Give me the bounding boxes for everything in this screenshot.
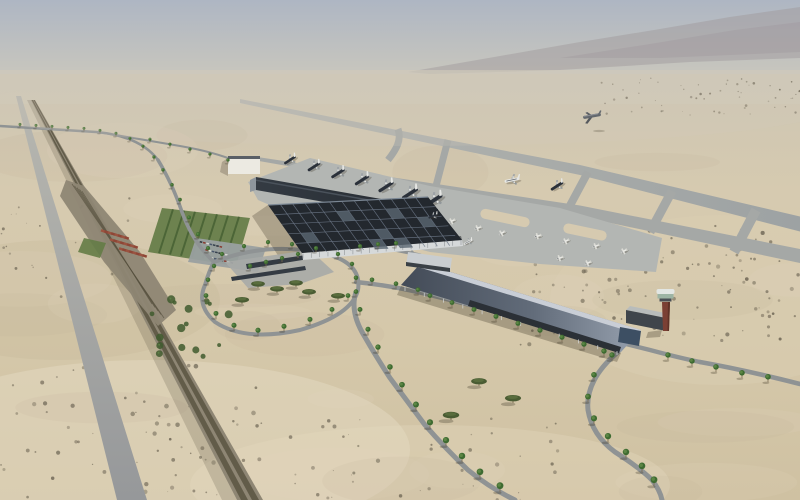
desert-shrub bbox=[779, 338, 782, 341]
desert-shrub bbox=[765, 290, 768, 293]
desert-shrub bbox=[39, 225, 41, 227]
desert-shrub bbox=[1, 233, 3, 235]
desert-shrub bbox=[677, 284, 680, 287]
desert-shrub bbox=[359, 419, 360, 420]
clump-tree bbox=[184, 322, 189, 327]
desert-shrub bbox=[645, 295, 647, 297]
palm-shadow bbox=[140, 149, 144, 150]
desert-shrub bbox=[536, 273, 538, 275]
palm-canopy-light bbox=[516, 322, 519, 325]
desert-shrub bbox=[727, 79, 729, 81]
desert-shrub bbox=[564, 287, 565, 288]
desert-shrub bbox=[46, 411, 48, 413]
desert-shrub bbox=[753, 258, 756, 261]
desert-shrub bbox=[754, 307, 757, 310]
desert-shrub bbox=[778, 260, 780, 262]
desert-shrub bbox=[767, 325, 770, 328]
service-building-roof-edge bbox=[228, 156, 260, 159]
desert-shrub bbox=[331, 497, 332, 498]
desert-shrub bbox=[696, 306, 698, 308]
acacia-canopy-light bbox=[507, 395, 518, 399]
palm-canopy-light bbox=[142, 145, 144, 147]
desert-shrub bbox=[67, 426, 70, 429]
desert-shrub bbox=[627, 285, 628, 286]
desert-shrub bbox=[158, 415, 160, 417]
desert-shrub bbox=[518, 492, 519, 493]
palm-canopy-light bbox=[450, 301, 453, 304]
desert-shrub bbox=[167, 423, 171, 427]
tree-shadow bbox=[286, 287, 298, 290]
clump-tree-light bbox=[170, 298, 172, 300]
desert-shrub bbox=[157, 450, 159, 452]
desert-shrub bbox=[32, 402, 36, 406]
desert-shrub bbox=[232, 420, 234, 422]
desert-shrub bbox=[257, 457, 261, 461]
desert-shrub bbox=[430, 444, 432, 446]
palm-shadow bbox=[246, 270, 251, 272]
palm-shadow bbox=[225, 163, 229, 164]
desert-shrub bbox=[326, 496, 329, 499]
palm-canopy-light bbox=[651, 477, 655, 481]
palm-shadow bbox=[579, 349, 586, 351]
palm-shadow bbox=[262, 266, 267, 268]
desert-shrub bbox=[18, 206, 20, 208]
desert-shrub bbox=[32, 267, 34, 269]
sand-mottle bbox=[595, 153, 720, 171]
desert-shrub bbox=[420, 490, 421, 491]
desert-shrub bbox=[716, 264, 720, 268]
palm-shadow bbox=[278, 262, 283, 264]
palm-shadow bbox=[373, 352, 380, 354]
palm-shadow bbox=[351, 296, 357, 298]
desert-shrub bbox=[40, 381, 44, 385]
desert-shrub bbox=[725, 332, 729, 336]
desert-shrub bbox=[9, 252, 11, 254]
desert-shrub bbox=[769, 85, 770, 86]
clump-tree bbox=[156, 350, 163, 357]
palm-shadow bbox=[425, 300, 431, 302]
desert-shrub bbox=[471, 434, 472, 435]
desert-shrub bbox=[316, 493, 319, 496]
desert-shrub bbox=[399, 494, 402, 497]
palm-canopy-light bbox=[256, 328, 259, 331]
desert-shrub bbox=[146, 431, 147, 432]
desert-shrub bbox=[553, 470, 557, 474]
desert-shrub bbox=[135, 412, 136, 413]
desert-shrub bbox=[60, 295, 63, 298]
desert-shrub bbox=[468, 448, 472, 452]
desert-shrub bbox=[721, 285, 722, 286]
desert-shrub bbox=[601, 299, 603, 301]
palm-shadow bbox=[17, 127, 21, 128]
desert-shrub bbox=[2, 246, 5, 249]
desert-shrub bbox=[255, 386, 258, 389]
scene-canvas: Aerial 3D architectural rendering of a d… bbox=[0, 0, 800, 500]
palm-shadow bbox=[374, 248, 379, 250]
desert-shrub bbox=[175, 423, 179, 427]
tree-shadow bbox=[248, 288, 260, 291]
desert-shrub bbox=[582, 290, 584, 292]
palm-shadow bbox=[413, 294, 419, 296]
palm-shadow bbox=[327, 314, 333, 316]
desert-shrub bbox=[130, 412, 134, 416]
palm-shadow bbox=[312, 252, 317, 254]
palm-canopy-light bbox=[162, 169, 164, 171]
control-tower-cab-top bbox=[657, 289, 675, 294]
palm-canopy-light bbox=[370, 278, 372, 280]
desert-shrub bbox=[342, 435, 345, 438]
palm-shadow bbox=[288, 248, 293, 250]
desert-shrub bbox=[144, 482, 148, 486]
desert-shrub bbox=[127, 219, 130, 222]
palm-canopy-light bbox=[428, 294, 430, 296]
desert-shrub bbox=[585, 284, 588, 287]
desert-shrub bbox=[761, 231, 765, 235]
palm-shadow bbox=[334, 258, 339, 260]
palm-canopy-light bbox=[416, 288, 418, 290]
palm-canopy-light bbox=[171, 183, 173, 185]
palm-canopy-light bbox=[477, 469, 481, 473]
palm-canopy-light bbox=[376, 243, 378, 245]
desert-shrub bbox=[289, 435, 293, 439]
desert-shrub bbox=[730, 306, 732, 308]
desert-shrub bbox=[761, 314, 764, 317]
desert-shrub bbox=[73, 369, 75, 371]
palm-canopy-light bbox=[586, 394, 589, 397]
palm-canopy-light bbox=[602, 349, 605, 352]
desert-shrub bbox=[15, 267, 18, 270]
palm-shadow bbox=[185, 221, 190, 223]
desert-shrub bbox=[348, 434, 349, 435]
acacia-canopy-light bbox=[445, 412, 456, 416]
desert-shrub bbox=[376, 459, 380, 463]
tree-shadow bbox=[299, 296, 312, 299]
palm-canopy-light bbox=[296, 252, 298, 254]
palm-canopy-light bbox=[460, 454, 463, 457]
desert-shrub bbox=[56, 451, 60, 455]
palm-canopy-light bbox=[169, 143, 171, 145]
desert-shrub bbox=[26, 223, 27, 224]
desert-shrub bbox=[11, 214, 12, 215]
palm-canopy-light bbox=[248, 264, 250, 266]
tree-shadow bbox=[231, 304, 244, 307]
desert-shrub bbox=[357, 445, 359, 447]
desert-shrub bbox=[167, 491, 168, 492]
palm-canopy-light bbox=[179, 198, 181, 200]
palm-canopy-light bbox=[209, 153, 211, 155]
palm-shadow bbox=[33, 128, 37, 129]
palm-shadow bbox=[167, 147, 171, 148]
airport-rendering: Aerial 3D architectural rendering of a d… bbox=[0, 0, 800, 500]
palm-canopy-light bbox=[714, 365, 717, 368]
desert-shrub bbox=[2, 468, 5, 471]
desert-shrub bbox=[461, 469, 464, 472]
desert-shrub bbox=[598, 291, 600, 293]
control-tower-cab-glass bbox=[658, 294, 674, 299]
desert-shrub bbox=[190, 453, 192, 455]
desert-shrub bbox=[772, 312, 775, 315]
palm-canopy-light bbox=[497, 483, 501, 487]
palm-canopy-light bbox=[610, 353, 613, 356]
clump-tree bbox=[177, 324, 185, 332]
palm-shadow bbox=[204, 252, 209, 254]
palm-canopy-light bbox=[308, 318, 311, 321]
palm-shadow bbox=[160, 173, 164, 174]
desert-shrub bbox=[311, 466, 315, 470]
palm-canopy-light bbox=[639, 463, 642, 466]
desert-shrub bbox=[427, 487, 430, 490]
palm-shadow bbox=[211, 318, 217, 320]
palm-canopy-light bbox=[358, 308, 361, 311]
palm-shadow bbox=[218, 258, 223, 260]
palm-canopy-light bbox=[354, 276, 356, 278]
palm-shadow bbox=[201, 300, 207, 302]
desert-shrub bbox=[758, 307, 759, 308]
desert-shrub bbox=[35, 451, 37, 453]
desert-shrub bbox=[790, 287, 794, 291]
desert-shrub bbox=[31, 265, 32, 266]
palm-shadow bbox=[127, 141, 131, 142]
acacia-canopy-light bbox=[304, 289, 313, 292]
palm-canopy-light bbox=[538, 328, 541, 331]
palm-canopy-light bbox=[280, 256, 282, 258]
desert-shrub bbox=[599, 297, 600, 298]
desert-shrub bbox=[490, 417, 493, 420]
palm-shadow bbox=[253, 335, 259, 337]
desert-shrub bbox=[520, 455, 521, 456]
palm-canopy-light bbox=[606, 434, 609, 437]
desert-shrub bbox=[549, 440, 553, 444]
clump-tree bbox=[150, 311, 155, 316]
palm-canopy-light bbox=[232, 323, 235, 326]
palm-shadow bbox=[355, 314, 361, 316]
palm-canopy-light bbox=[414, 402, 417, 405]
palm-canopy-light bbox=[350, 262, 352, 264]
desert-shrub bbox=[2, 227, 5, 230]
clump-tree-light bbox=[158, 344, 160, 346]
palm-canopy-light bbox=[346, 294, 348, 296]
clump-tree bbox=[172, 300, 176, 304]
desert-shrub bbox=[708, 262, 711, 265]
desert-shrub bbox=[725, 254, 727, 256]
palm-shadow bbox=[187, 152, 191, 153]
desert-shrub bbox=[6, 246, 8, 248]
desert-shrub bbox=[495, 462, 499, 466]
desert-shrub bbox=[260, 422, 262, 424]
palm-shadow bbox=[513, 328, 519, 330]
desert-shrub bbox=[333, 425, 337, 429]
palm-canopy-light bbox=[204, 294, 206, 296]
palm-shadow bbox=[305, 324, 311, 326]
desert-shrub bbox=[45, 277, 47, 279]
palm-canopy-light bbox=[189, 148, 191, 150]
palm-shadow bbox=[176, 203, 181, 205]
desert-shrub bbox=[662, 335, 663, 336]
desert-shrub bbox=[255, 424, 258, 427]
desert-shrub bbox=[741, 78, 743, 80]
palm-canopy-light bbox=[592, 373, 595, 376]
desert-shrub bbox=[26, 449, 30, 453]
desert-shrub bbox=[614, 278, 617, 281]
palm-canopy-light bbox=[592, 416, 595, 419]
desert-shrub bbox=[581, 299, 585, 303]
desert-shrub bbox=[26, 496, 29, 499]
palm-shadow bbox=[447, 307, 453, 309]
desert-shrub bbox=[187, 364, 191, 368]
desert-shrub bbox=[527, 342, 531, 346]
desert-shrub bbox=[767, 334, 770, 337]
palm-canopy-light bbox=[444, 438, 447, 441]
desert-shrub bbox=[546, 427, 548, 429]
desert-shrub bbox=[164, 404, 169, 409]
desert-shrub bbox=[327, 419, 330, 422]
acacia-canopy-light bbox=[333, 293, 343, 296]
control-tower-cab-base bbox=[660, 299, 672, 302]
palm-shadow bbox=[229, 330, 235, 332]
acacia-canopy-light bbox=[291, 281, 300, 284]
palm-shadow bbox=[469, 314, 475, 316]
palm-canopy-light bbox=[354, 290, 356, 292]
desert-shrub bbox=[551, 462, 554, 465]
palm-canopy-light bbox=[358, 245, 360, 247]
desert-shrub bbox=[351, 474, 352, 475]
desert-shrub bbox=[660, 260, 663, 263]
palm-canopy-light bbox=[388, 365, 391, 368]
palm-shadow bbox=[343, 300, 349, 302]
palm-canopy-light bbox=[220, 252, 222, 254]
desert-shrub bbox=[662, 257, 664, 259]
desert-shrub bbox=[730, 289, 732, 291]
palm-canopy-light bbox=[266, 241, 268, 243]
desert-shrub bbox=[192, 490, 195, 493]
desert-shrub bbox=[607, 278, 611, 282]
desert-shrub bbox=[155, 421, 159, 425]
clump-tree bbox=[156, 334, 164, 342]
desert-shrub bbox=[71, 404, 75, 408]
palm-shadow bbox=[392, 247, 397, 249]
desert-shrub bbox=[742, 330, 743, 331]
desert-shrub bbox=[682, 331, 686, 335]
desert-shrub bbox=[124, 397, 127, 400]
palm-canopy-light bbox=[188, 216, 190, 218]
desert-shrub bbox=[352, 471, 355, 474]
desert-shrub bbox=[169, 438, 172, 441]
desert-shrub bbox=[333, 470, 334, 471]
palm-canopy-light bbox=[690, 359, 693, 362]
desert-shrub bbox=[705, 244, 709, 248]
desert-shrub bbox=[750, 258, 752, 260]
desert-shrub bbox=[216, 494, 217, 495]
desert-shrub bbox=[16, 214, 17, 215]
desert-shrub bbox=[745, 277, 749, 281]
palm-shadow bbox=[367, 284, 373, 286]
desert-shrub bbox=[552, 284, 555, 287]
desert-shrub bbox=[180, 446, 182, 448]
sand-mottle bbox=[308, 389, 374, 408]
acacia-canopy-light bbox=[272, 286, 281, 289]
palm-canopy-light bbox=[428, 420, 431, 423]
palm-canopy-light bbox=[282, 324, 285, 327]
desert-shrub bbox=[12, 384, 14, 386]
desert-shrub bbox=[603, 301, 606, 304]
desert-shrub bbox=[796, 273, 799, 276]
desert-shrub bbox=[135, 392, 138, 395]
desert-shrub bbox=[746, 81, 748, 83]
palm-shadow bbox=[194, 238, 199, 240]
palm-shadow bbox=[279, 331, 285, 333]
desert-shrub bbox=[736, 254, 739, 257]
palm-canopy-light bbox=[366, 327, 369, 330]
palm-shadow bbox=[491, 321, 497, 323]
desert-shrub bbox=[732, 266, 734, 268]
desert-shrub bbox=[143, 400, 146, 403]
desert-shrub bbox=[713, 275, 715, 277]
desert-shrub bbox=[294, 483, 295, 484]
desert-shrub bbox=[749, 85, 750, 86]
palm-shadow bbox=[147, 142, 151, 143]
clump-tree bbox=[225, 310, 233, 318]
desert-shrub bbox=[251, 411, 256, 416]
clump-tree bbox=[178, 344, 185, 351]
palm-shadow bbox=[348, 268, 353, 270]
clump-tree bbox=[185, 305, 193, 313]
desert-shrub bbox=[491, 432, 493, 434]
palm-canopy-light bbox=[206, 247, 208, 249]
clump-tree bbox=[217, 343, 221, 347]
desert-shrub bbox=[92, 433, 93, 434]
desert-shrub bbox=[74, 440, 77, 443]
palm-canopy-light bbox=[394, 282, 396, 284]
desert-shrub bbox=[742, 281, 745, 284]
acacia-canopy-light bbox=[253, 282, 262, 285]
palm-canopy-light bbox=[290, 243, 292, 245]
palm-canopy-light bbox=[494, 315, 497, 318]
clump-tree bbox=[156, 342, 163, 349]
dust-haze bbox=[0, 70, 800, 146]
desert-shrub bbox=[242, 459, 245, 462]
palm-canopy-light bbox=[227, 159, 229, 161]
desert-shrub bbox=[136, 462, 137, 463]
palm-canopy-light bbox=[212, 264, 214, 266]
desert-shrub bbox=[92, 464, 93, 465]
desert-shrub bbox=[753, 82, 756, 85]
palm-shadow bbox=[151, 160, 155, 161]
palm-shadow bbox=[557, 342, 563, 344]
palm-shadow bbox=[363, 334, 369, 336]
desert-shrub bbox=[532, 290, 535, 293]
desert-shrub bbox=[103, 470, 107, 474]
desert-shrub bbox=[768, 297, 770, 299]
sand-mottle bbox=[617, 411, 795, 443]
desert-shrub bbox=[556, 449, 559, 452]
desert-shrub bbox=[0, 464, 2, 466]
desert-shrub bbox=[171, 458, 175, 462]
palm-canopy-light bbox=[560, 335, 563, 338]
palm-shadow bbox=[210, 270, 215, 272]
desert-shrub bbox=[294, 474, 296, 476]
desert-shrub bbox=[75, 242, 77, 244]
desert-shrub bbox=[584, 269, 588, 273]
desert-shrub bbox=[768, 315, 771, 318]
desert-shrub bbox=[43, 401, 47, 405]
palm-canopy-light bbox=[582, 342, 585, 345]
desert-shrub bbox=[752, 281, 756, 285]
desert-shrub bbox=[714, 225, 716, 227]
palm-shadow bbox=[535, 335, 541, 337]
palm-canopy-light bbox=[472, 308, 475, 311]
palm-shadow bbox=[240, 250, 245, 252]
palm-shadow bbox=[356, 250, 361, 252]
